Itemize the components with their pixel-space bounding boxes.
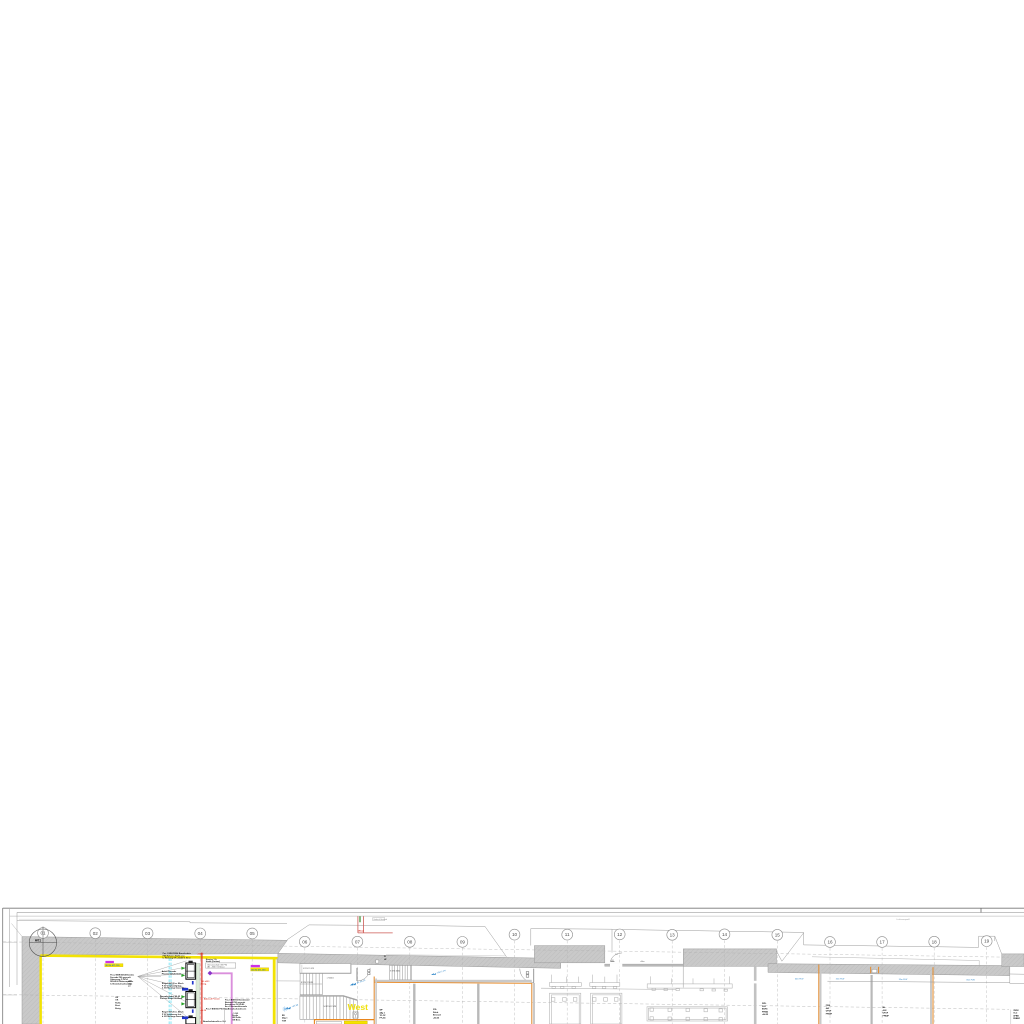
- svg-text:b. B1 Montage bauseits: b. B1 Montage bauseits: [162, 987, 185, 990]
- svg-text:BGF4: BGF4: [762, 1008, 768, 1011]
- svg-text:YBFK: YBFK: [1013, 1010, 1019, 1012]
- svg-text:4 STG 17.6/28: 4 STG 17.6/28: [303, 968, 314, 970]
- svg-text:FF+64: FF+64: [380, 1017, 387, 1020]
- svg-text:Pfosten 60/120 Stahl: Pfosten 60/120 Stahl: [162, 972, 182, 975]
- svg-text:16: 16: [827, 940, 833, 945]
- svg-text:35m FLW: 35m FLW: [899, 979, 908, 981]
- svg-text:West: West: [348, 1002, 369, 1012]
- svg-text:Pfosten Riegel Bestand: Pfosten Riegel Bestand: [160, 997, 183, 1000]
- svg-text:FLK: FLK: [762, 1006, 766, 1008]
- svg-text:Statik (Umbau): Statik (Umbau): [206, 960, 220, 963]
- svg-text:b. Wartung OK +64.20 It. Best: b. Wartung OK +64.20 It. Best: [163, 957, 191, 960]
- svg-text:03: 03: [145, 931, 151, 936]
- svg-text:Wand: Wand: [358, 931, 364, 933]
- svg-text:Abbruch Fenster: Abbruch Fenster: [204, 997, 220, 1000]
- svg-text:Bestand: Bestand: [433, 1014, 442, 1017]
- svg-text:FFB4F: FFB4F: [826, 1012, 833, 1015]
- svg-text:12: 12: [617, 932, 623, 937]
- svg-text:o?0442-1: o?0442-1: [327, 977, 334, 980]
- svg-text:10: 10: [512, 932, 518, 937]
- svg-text:(B1 - B30 / Umbau): (B1 - B30 / Umbau): [207, 966, 225, 968]
- svg-text:UFGF: UFGF: [826, 1011, 832, 1013]
- svg-text:08: 08: [407, 939, 413, 944]
- svg-text:UFBB: UFBB: [1013, 1015, 1019, 1017]
- svg-text:19: 19: [984, 939, 990, 944]
- svg-text:15: 15: [775, 932, 781, 937]
- svg-text:OK Best.: OK Best.: [232, 1018, 241, 1021]
- svg-text:+64.35: +64.35: [433, 1016, 440, 1019]
- svg-text:06: 06: [302, 939, 308, 944]
- svg-text:07: 07: [355, 939, 361, 944]
- svg-text:8 STG 16/30: 8 STG 16/30: [390, 971, 400, 973]
- svg-text:FWS: FWS: [826, 1005, 831, 1007]
- svg-text:35m FLW: 35m FLW: [836, 979, 845, 981]
- svg-text:Rohb.: Rohb.: [433, 1012, 439, 1014]
- svg-text:FBBBF: FBBBF: [1013, 1018, 1021, 1020]
- svg-text:BV-Nr 471.100: BV-Nr 471.100: [106, 964, 121, 967]
- svg-text:04: 04: [198, 931, 204, 936]
- svg-text:TOR: TOR: [282, 1020, 287, 1022]
- svg-text:Rohb.: Rohb.: [115, 1002, 121, 1004]
- svg-text:14 STG 17.5/28: 14 STG 17.5/28: [324, 1006, 337, 1008]
- svg-text:14: 14: [722, 932, 728, 937]
- svg-text:4Ag 1: 4Ag 1: [380, 1011, 386, 1014]
- svg-text:A01: A01: [35, 939, 41, 943]
- svg-text:WFL: WFL: [762, 1003, 767, 1005]
- svg-text:m. Brandschutzkissen: m. Brandschutzkissen: [225, 1007, 247, 1010]
- svg-text:FFB4F: FFB4F: [883, 1014, 890, 1017]
- svg-text:Brstg.: Brstg.: [201, 982, 207, 985]
- svg-text:05: 05: [250, 931, 256, 936]
- svg-text:Vordach Bestand: Vordach Bestand: [373, 918, 387, 921]
- svg-text:Best.: Best.: [115, 1004, 120, 1007]
- svg-text:17: 17: [880, 940, 886, 945]
- svg-text:FFB42: FFB42: [762, 1010, 769, 1013]
- svg-text:60m FLW: 60m FLW: [795, 978, 804, 980]
- svg-text:UFGF: UFGF: [883, 1013, 889, 1015]
- svg-text:Brstg.: Brstg.: [115, 1007, 121, 1010]
- svg-text:BV-Nr 471.100: BV-Nr 471.100: [252, 968, 267, 971]
- svg-text:dAg 1: dAg 1: [282, 1017, 288, 1020]
- svg-text:+64.10: +64.10: [200, 1009, 207, 1012]
- svg-text:b. B1 Montage bauseits: b. B1 Montage bauseits: [162, 1015, 185, 1018]
- svg-text:+64.35: +64.35: [197, 953, 204, 956]
- svg-text:+64.35: +64.35: [762, 1013, 769, 1016]
- svg-text:Brandschutzrollo n. Zul.: Brandschutzrollo n. Zul.: [203, 1020, 226, 1023]
- svg-text:09: 09: [460, 940, 466, 945]
- svg-text:8 STG 17.6/28: 8 STG 17.6/28: [301, 982, 313, 984]
- svg-text:uRnn: uRnn: [640, 961, 644, 963]
- svg-text:TO.OF: TO.OF: [380, 1015, 387, 1017]
- svg-text:18: 18: [932, 939, 938, 944]
- svg-text:Pos.7 BSK/05 F90 Best.: Pos.7 BSK/05 F90 Best.: [206, 1007, 229, 1010]
- svg-text:2%: 2%: [615, 954, 618, 956]
- svg-text:35m FLW: 35m FLW: [966, 980, 975, 982]
- svg-text:11: 11: [565, 932, 570, 937]
- svg-text:02: 02: [93, 931, 99, 936]
- svg-text:Lichtraumprofil: Lichtraumprofil: [897, 918, 911, 921]
- svg-text:13: 13: [670, 932, 676, 937]
